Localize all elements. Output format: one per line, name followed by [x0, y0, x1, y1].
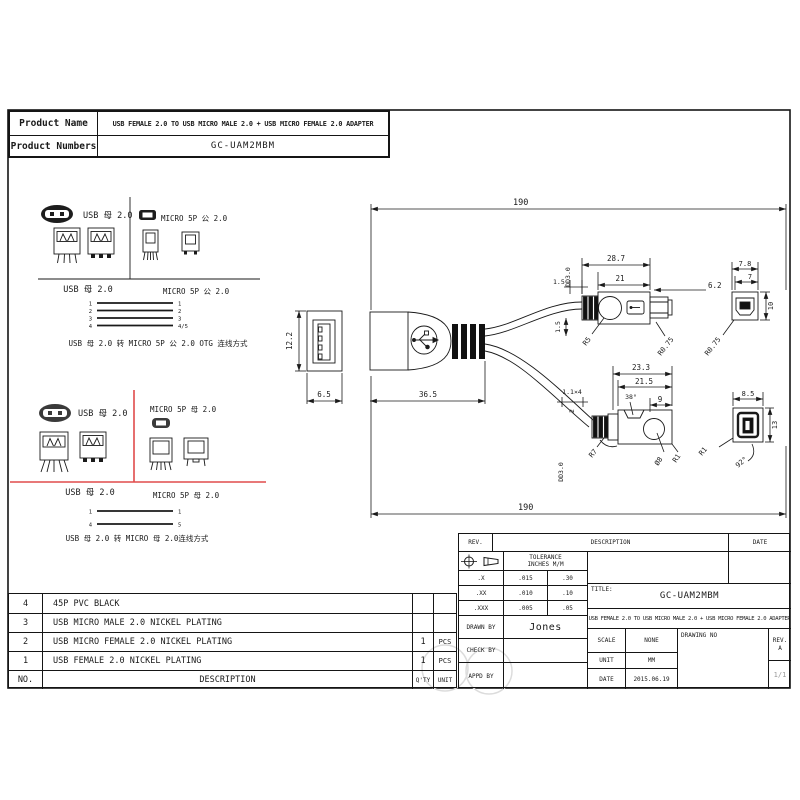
dim-190-top	[371, 204, 786, 310]
part-desc: USB MICRO FEMALE 2.0 NICKEL PLATING	[43, 633, 412, 651]
usb-female-front-view	[307, 311, 342, 371]
micro-side-icon-2	[152, 418, 170, 428]
date-header: DATE	[729, 534, 791, 552]
dim-13-label: 13	[771, 421, 779, 429]
appd-by-value	[504, 663, 588, 689]
usb-top-icon-label: USB 母 2.0	[83, 211, 132, 221]
main-drawing: 190 190 12.2	[285, 198, 786, 518]
dim-1-5-v-label: 1.5	[554, 321, 562, 333]
rev-header: REV.	[459, 534, 493, 552]
dim-8-5-label: 8.5	[742, 390, 755, 398]
unit-label: UNIT	[588, 653, 626, 669]
pinout-panel: USB 母 2.0 MICRO 5P 公 2.0 USB 母 2.0 MICRO…	[10, 197, 266, 543]
part-no: 1	[9, 652, 43, 670]
micro-bottom-icon-label: MICRO 5P 母 2.0	[150, 405, 217, 414]
part-no: 3	[9, 614, 43, 632]
drawn-by-label: DRAWN BY	[459, 616, 504, 639]
svg-text:1: 1	[178, 302, 181, 308]
scale-label: SCALE	[588, 629, 626, 653]
cable-dia-label-top: DD3.0	[564, 267, 572, 287]
table-row: 2 USB MICRO FEMALE 2.0 NICKEL PLATING 1 …	[9, 632, 456, 651]
wiring-pin-numbers-bottom: 1 4 1 5	[89, 510, 182, 529]
usb-a-side-icon-2	[39, 404, 71, 422]
title-value: GC-UAM2MBM	[660, 591, 719, 601]
svg-text:2: 2	[178, 309, 181, 315]
usb-view-label: USB 母 2.0	[63, 285, 112, 295]
micro-view-label: MICRO 5P 公 2.0	[163, 287, 230, 296]
part-desc: USB FEMALE 2.0 NICKEL PLATING	[43, 652, 412, 670]
dim-6-5-label: 6.5	[317, 390, 331, 399]
rev-cell: REV. A	[769, 629, 791, 661]
part-qty: 1	[412, 652, 433, 670]
cable-dia-label-bottom: DD3.0	[557, 462, 565, 482]
dim-28-7-label: 28.7	[607, 254, 625, 263]
tol-in-1: .015	[504, 571, 548, 586]
leader-92	[748, 444, 754, 461]
micro-male-front-view-icon	[143, 230, 158, 260]
svg-text:4: 4	[89, 523, 93, 529]
wiring-caption-otg: USB 母 2.0 转 MICRO 5P 公 2.0 OTG 连线方式	[69, 338, 248, 348]
product-info-table: Product Name USB FEMALE 2.0 TO USB MICRO…	[8, 110, 390, 158]
dim-7	[735, 276, 758, 290]
svg-text:1: 1	[89, 302, 92, 308]
description-header: DESCRIPTION	[493, 534, 729, 552]
r5-label: R5	[581, 336, 592, 348]
leader-38	[630, 402, 633, 415]
revision-blank-cell	[588, 552, 729, 584]
tol-place-2: .XX	[459, 586, 504, 601]
no-header: NO.	[9, 671, 43, 689]
dim-21-label: 21	[615, 274, 624, 283]
dia8-label: Ø8	[653, 456, 664, 468]
dim-12-2	[295, 311, 306, 371]
drawing-no-label: DRAWING NO	[681, 632, 717, 639]
tol-mm-2: .10	[548, 586, 588, 601]
r0-75-front-label: R0.75	[703, 336, 722, 358]
table-row: 1 USB FEMALE 2.0 NICKEL PLATING 1 PCS	[9, 651, 456, 670]
dim-10-label: 10	[767, 302, 775, 310]
part-desc: 45P PVC BLACK	[43, 594, 412, 613]
rev-value: A	[778, 645, 782, 653]
date-label: DATE	[588, 669, 626, 689]
micro-male-front-view	[732, 292, 758, 320]
wiring-caption-female: USB 母 2.0 转 MICRO 母 2.0连线方式	[66, 533, 209, 543]
dim-23-3	[613, 366, 672, 410]
svg-text:3: 3	[178, 317, 181, 323]
title-cell: TITLE: GC-UAM2MBM	[588, 584, 791, 609]
usb-a-front-view3-icon	[40, 432, 68, 472]
dim-7-label: 7	[748, 273, 752, 281]
tolerance-units: INCHES M/M	[527, 561, 563, 568]
r7-label: R7	[587, 448, 599, 460]
part-qty: 1	[412, 633, 433, 651]
product-numbers-label: Product Numbers	[10, 136, 98, 156]
unit-value: MM	[626, 653, 678, 669]
engineering-drawing-sheet: USB 母 2.0 MICRO 5P 公 2.0 USB 母 2.0 MICRO…	[0, 0, 800, 800]
tol-in-2: .010	[504, 586, 548, 601]
micro-male-side-view	[582, 292, 672, 324]
dim-1-1x4-label: 1.1×4	[562, 388, 582, 396]
part-no: 2	[9, 633, 43, 651]
svg-text:2: 2	[89, 309, 92, 315]
wiring-diagram-otg	[97, 303, 173, 326]
wiring-diagram-female	[97, 511, 173, 524]
usb-view-label-2: USB 母 2.0	[65, 488, 114, 498]
product-name-value: USB FEMALE 2.0 TO USB MICRO MALE 2.0 + U…	[98, 112, 388, 136]
part-no: 4	[9, 594, 43, 613]
product-name-label: Product Name	[10, 112, 98, 136]
r1-body-label: R1	[671, 453, 682, 465]
svg-text:5: 5	[178, 523, 181, 529]
micro-male-front-view2-icon	[182, 232, 199, 255]
leader-r7	[597, 438, 604, 447]
r0-75-plug-label: R0.75	[656, 336, 675, 358]
micro-female-front-view	[733, 408, 763, 442]
leader-r1-body	[672, 444, 678, 452]
dim-9-label: 9	[658, 395, 663, 404]
cable-curves	[485, 302, 593, 427]
dim-6-2-label: 6.2	[708, 281, 722, 290]
svg-text:1: 1	[89, 510, 92, 516]
title-label: TITLE:	[591, 586, 613, 593]
dim-190-top-label: 190	[513, 198, 528, 208]
tol-place-3: .XXX	[459, 601, 504, 616]
revision-date-blank-cell	[729, 552, 791, 584]
tol-mm-1: .30	[548, 571, 588, 586]
tolerance-label: TOLERANCE	[529, 554, 562, 561]
svg-text:3: 3	[89, 317, 92, 323]
part-unit: PCS	[433, 652, 456, 670]
dim-190-bottom-label: 190	[518, 503, 533, 513]
dim-12-2-label: 12.2	[285, 332, 294, 350]
check-by-label: CHECK BY	[459, 639, 504, 663]
dim-6-5	[307, 373, 342, 404]
sheet-number: 1/1	[769, 661, 791, 689]
usb-female-side-view	[370, 312, 451, 370]
part-unit: PCS	[433, 633, 456, 651]
appd-by-label: APPD BY	[459, 663, 504, 689]
table-row: 4 45P PVC BLACK	[9, 594, 456, 613]
usb-a-side-icon	[41, 205, 73, 223]
micro-female-front-view-icon	[150, 438, 172, 470]
tol-mm-3: .05	[548, 601, 588, 616]
usb-a-front-view2-icon	[88, 228, 114, 258]
parts-header-row: NO. DESCRIPTION Q'TY UNIT	[9, 670, 456, 689]
third-angle-projection-icon	[460, 554, 502, 569]
rev-label: REV.	[773, 637, 787, 645]
date-value: 2015.06.19	[626, 669, 678, 689]
leader-r1-front	[719, 438, 733, 447]
dim-36-5-label: 36.5	[419, 390, 437, 399]
dim-23-3-label: 23.3	[632, 363, 650, 372]
part-desc: USB MICRO MALE 2.0 NICKEL PLATING	[43, 614, 412, 632]
dim-2-label: 2	[568, 409, 576, 413]
leader-r075-front	[723, 320, 734, 335]
description-header: DESCRIPTION	[43, 671, 412, 689]
table-row: 3 USB MICRO MALE 2.0 NICKEL PLATING	[9, 613, 456, 632]
qty-header: Q'TY	[412, 671, 433, 689]
angle-92-label: 92°	[734, 455, 749, 469]
leader-dia8	[657, 433, 664, 452]
dim-21-5-label: 21.5	[635, 377, 653, 386]
title-block: REV. DESCRIPTION DATE TOLERANCE INCHES M…	[458, 533, 790, 688]
usb-a-front-view-icon	[54, 228, 80, 263]
angle-38-label: 38°	[625, 393, 637, 401]
check-by-value	[504, 639, 588, 663]
usb-bottom-icon-label: USB 母 2.0	[78, 409, 127, 419]
part-qty	[412, 614, 433, 632]
svg-text:4: 4	[89, 324, 93, 330]
dim-7-8-label: 7.8	[739, 260, 752, 268]
svg-text:1: 1	[178, 510, 181, 516]
part-unit	[433, 594, 456, 613]
projection-symbols-cell	[459, 552, 504, 571]
svg-text:4/5: 4/5	[178, 324, 188, 330]
tol-place-1: .X	[459, 571, 504, 586]
micro-view-label-2: MICRO 5P 母 2.0	[153, 491, 220, 500]
strain-relief-bands	[452, 324, 485, 359]
micro-side-icon	[139, 210, 156, 220]
part-unit	[433, 614, 456, 632]
product-numbers-value: GC-UAM2MBM	[98, 136, 388, 156]
tol-in-3: .005	[504, 601, 548, 616]
title-subtitle: USB FEMALE 2.0 TO USB MICRO MALE 2.0 + U…	[588, 609, 791, 629]
usb-a-front-view4-icon	[80, 432, 106, 462]
r1-front-label: R1	[697, 446, 709, 458]
tolerance-header-cell: TOLERANCE INCHES M/M	[504, 552, 588, 571]
pinout-dividers-top	[38, 197, 260, 279]
dim-1-1x4	[557, 397, 588, 407]
leader-r075-plug	[656, 322, 665, 336]
drawn-by-value: Jones	[504, 616, 588, 639]
unit-header: UNIT	[433, 671, 456, 689]
micro-female-front-view2-icon	[184, 438, 208, 466]
micro-top-icon-label: MICRO 5P 公 2.0	[161, 214, 228, 223]
part-qty	[412, 594, 433, 613]
parts-list-table: 4 45P PVC BLACK 3 USB MICRO MALE 2.0 NIC…	[8, 593, 457, 688]
drawing-no-cell: DRAWING NO	[678, 629, 769, 689]
scale-value: NONE	[626, 629, 678, 653]
